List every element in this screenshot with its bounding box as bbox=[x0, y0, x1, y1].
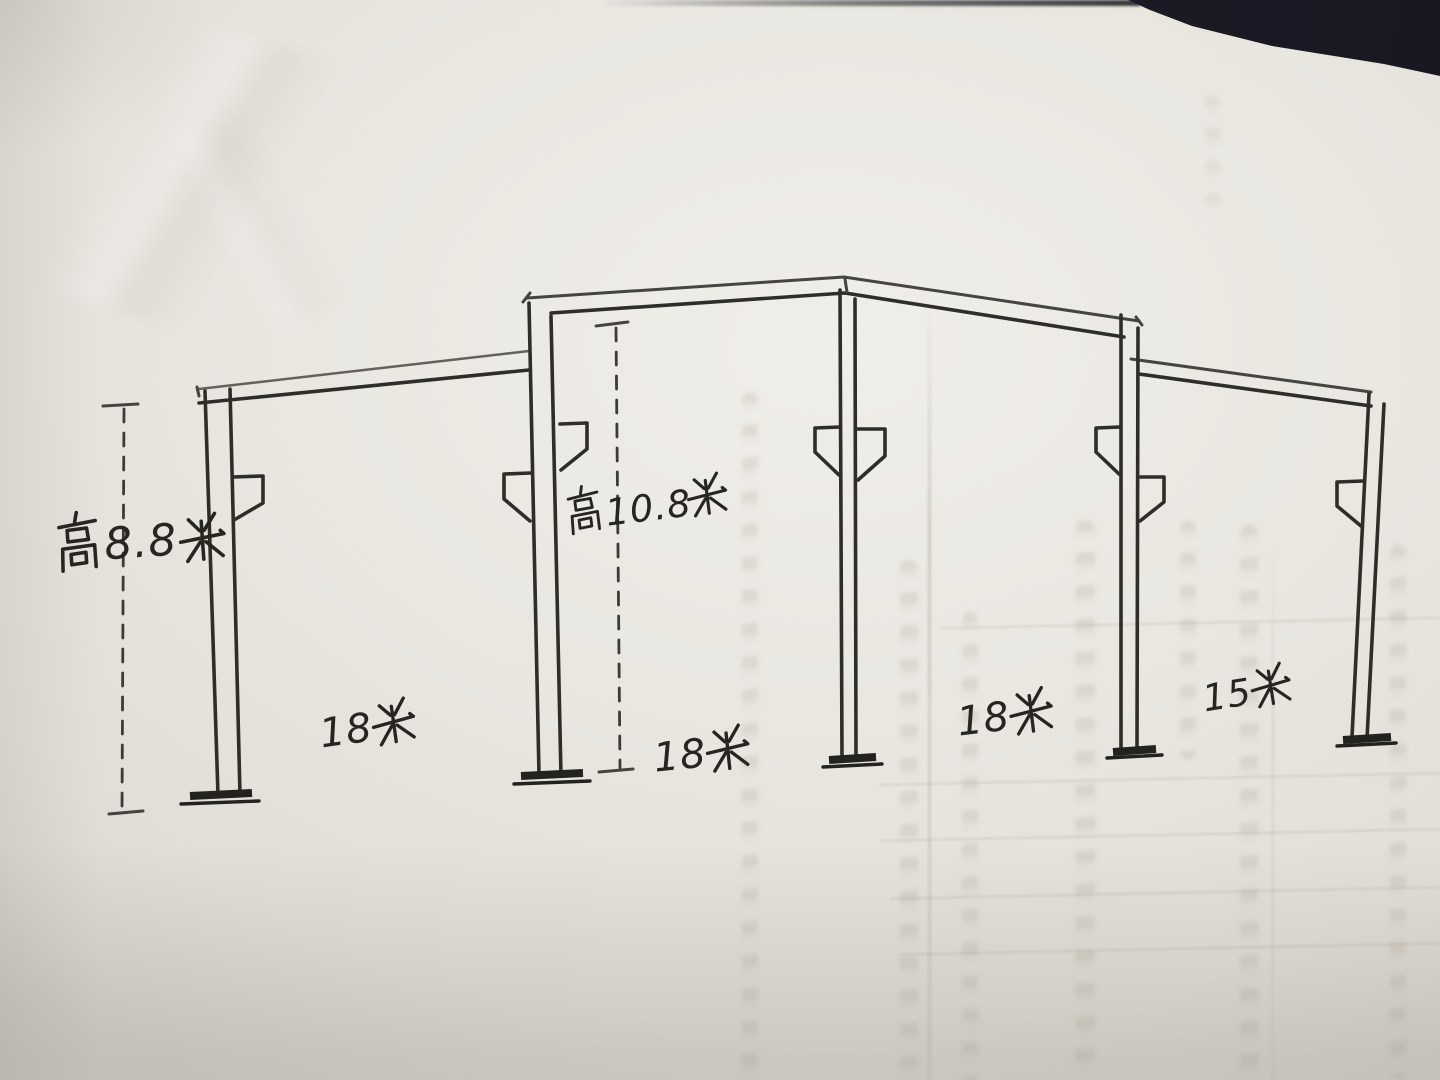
beam-top-edge bbox=[1131, 359, 1371, 392]
dimension-dashed-line bbox=[616, 328, 620, 768]
beam-bottom-edge bbox=[551, 293, 1124, 337]
corbel-column-4-left bbox=[1096, 427, 1120, 474]
column-5 bbox=[1352, 394, 1384, 739]
corbel-column-1-right bbox=[233, 476, 263, 520]
dimension-line-middle-height bbox=[596, 322, 633, 772]
corbel-column-2-left bbox=[504, 473, 531, 521]
corbel-column-2-right bbox=[560, 423, 587, 470]
mi-meter-icon bbox=[370, 697, 417, 745]
corbel-column-3-left bbox=[815, 427, 840, 475]
corbel-column-4-right bbox=[1139, 477, 1164, 521]
corbel-column-5-left bbox=[1337, 481, 1363, 526]
column-1-base-plate bbox=[181, 793, 259, 804]
column-1 bbox=[205, 389, 240, 795]
mi-meter-icon bbox=[1008, 687, 1054, 735]
span-2-value: 18 bbox=[651, 730, 708, 781]
structural-frame-sketch: 8.8 10.8 18 18 18 15 bbox=[0, 0, 1440, 1080]
column-3-base-plate bbox=[823, 757, 882, 767]
span-4-value: 15 bbox=[1200, 670, 1255, 720]
label-height-middle: 10.8 bbox=[567, 469, 729, 539]
beam-top-edge bbox=[527, 277, 1139, 321]
column-3 bbox=[840, 290, 856, 758]
mi-meter-icon bbox=[1249, 662, 1293, 707]
mi-meter-icon bbox=[179, 513, 226, 562]
label-span-2: 18 bbox=[651, 724, 751, 781]
height-middle-value: 10.8 bbox=[603, 482, 694, 535]
roof-beam-bay-1 bbox=[199, 351, 529, 403]
column-2 bbox=[529, 303, 561, 776]
span-1-value: 18 bbox=[317, 705, 376, 758]
height-left-value: 8.8 bbox=[103, 514, 179, 570]
beam-bottom-edge bbox=[199, 370, 529, 403]
photo-of-paper-sketch: 8.8 10.8 18 18 18 15 bbox=[0, 0, 1440, 1080]
label-span-4: 15 bbox=[1199, 662, 1293, 720]
label-span-1: 18 bbox=[316, 697, 417, 757]
column-4 bbox=[1121, 315, 1138, 750]
gao-height-icon bbox=[567, 485, 602, 534]
roof-beam-bay-4 bbox=[1131, 359, 1371, 406]
dimension-line-left-height bbox=[103, 404, 143, 814]
beam-top-edge bbox=[199, 351, 529, 389]
column-2-base-plate bbox=[514, 773, 590, 784]
pen-flick-marks bbox=[197, 279, 1142, 396]
label-span-3: 18 bbox=[954, 687, 1054, 746]
corbel-column-3-right bbox=[857, 429, 885, 480]
gao-height-icon bbox=[58, 511, 99, 571]
label-height-left: 8.8 bbox=[58, 502, 226, 573]
roof-beam-center-ridge bbox=[527, 277, 1139, 337]
column-5-base-plate bbox=[1337, 737, 1396, 746]
span-3-value: 18 bbox=[954, 693, 1012, 745]
mi-meter-icon bbox=[705, 724, 750, 771]
dimension-ticks bbox=[596, 322, 633, 772]
column-4-base-plate bbox=[1107, 749, 1162, 758]
beam-bottom-edge bbox=[1139, 374, 1371, 406]
dimension-dashed-line bbox=[122, 409, 124, 809]
desk-edge-sliver bbox=[600, 0, 1140, 6]
